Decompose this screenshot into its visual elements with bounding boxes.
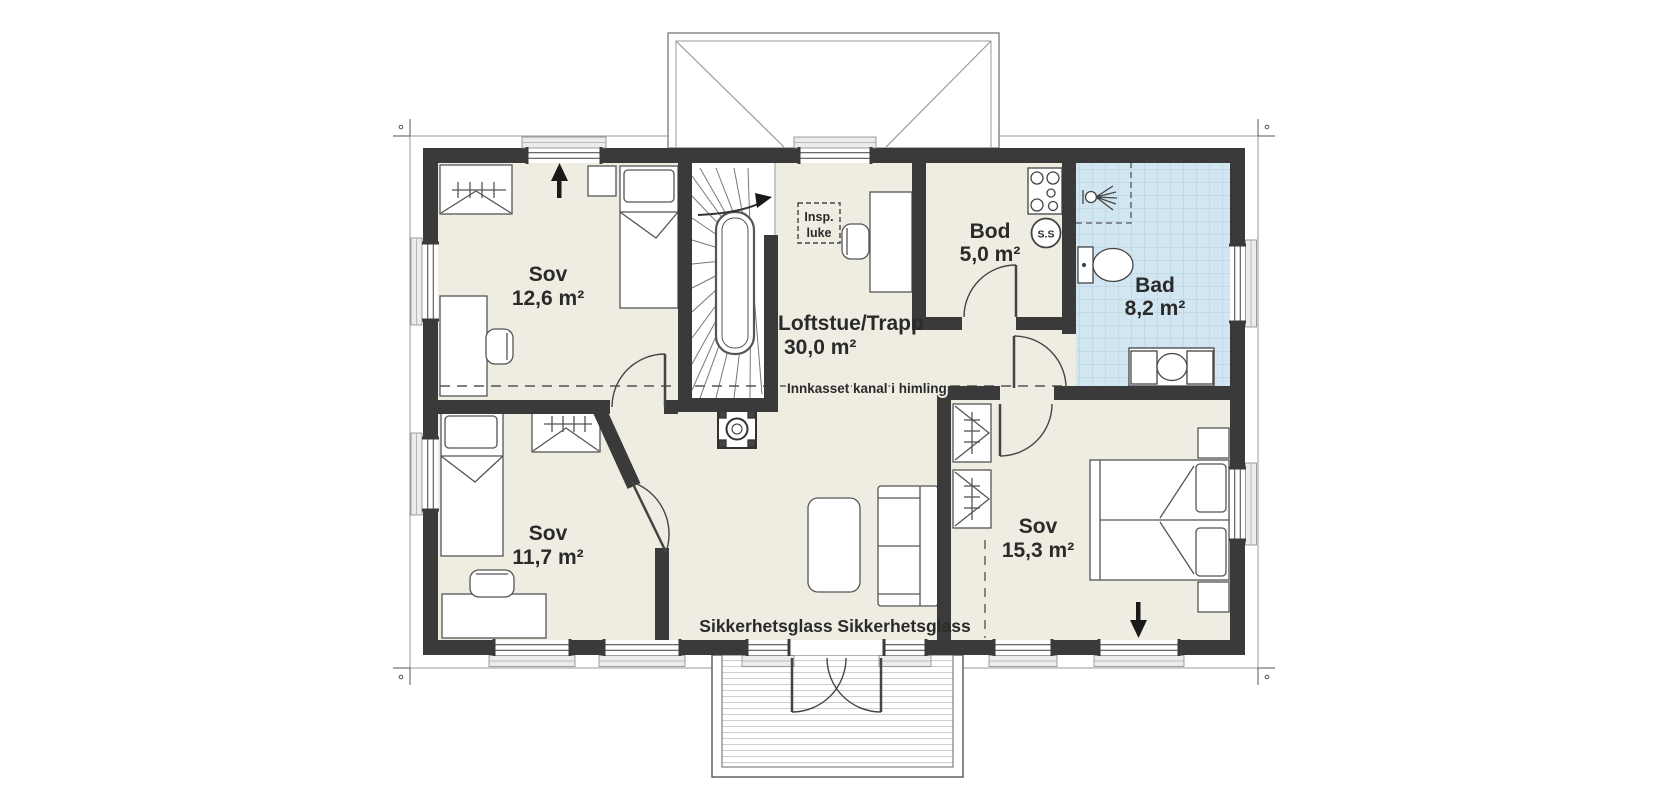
- wardrobe-icon: [953, 404, 991, 462]
- inspection-hatch-label-1: Insp.: [804, 210, 833, 224]
- floor-plan-page: Insp. luke Sov 12,6 m² Loftstue/Trapp 30…: [0, 0, 1670, 800]
- toilet-icon: [1078, 247, 1133, 283]
- single-bed-icon: [441, 411, 503, 556]
- window-icon: [599, 639, 685, 667]
- sofa-icon: [878, 486, 938, 606]
- vanity-sink-icon: [1129, 348, 1214, 386]
- room-area-sov-main: 12,6 m²: [512, 287, 584, 310]
- terrace-door-threshold: [788, 640, 885, 655]
- window-icon: [411, 433, 439, 515]
- desk-icon: [440, 296, 487, 396]
- dormer-roof-outline: [668, 33, 999, 148]
- inspection-hatch-label-2: luke: [806, 226, 831, 240]
- coffee-table-icon: [808, 498, 860, 592]
- room-area-bad: 8,2 m²: [1125, 297, 1186, 320]
- wardrobe-icon: [953, 470, 991, 528]
- room-name-sov-main: Sov: [529, 263, 568, 286]
- chair-icon: [470, 570, 514, 597]
- window-icon: [522, 137, 606, 164]
- window-icon: [794, 137, 876, 164]
- shaft-label: S.S: [1038, 229, 1055, 241]
- window-icon: [1229, 463, 1257, 545]
- chimney-icon: [718, 410, 756, 448]
- chair-icon: [486, 329, 513, 364]
- window-icon: [1094, 639, 1184, 667]
- safety-glass-note: Sikkerhetsglass Sikkerhetsglass: [699, 616, 971, 636]
- window-icon: [879, 639, 931, 667]
- window-icon: [411, 238, 439, 325]
- room-name-loftstue: Loftstue/Trapp: [778, 312, 924, 335]
- room-name-sov-east: Sov: [1019, 515, 1058, 538]
- room-name-bod: Bod: [970, 220, 1011, 243]
- room-name-sov-west: Sov: [529, 522, 568, 545]
- nightstand-icon: [588, 166, 616, 196]
- terrace: [712, 655, 963, 777]
- single-bed-icon: [620, 166, 678, 308]
- room-area-sov-west: 11,7 m²: [512, 546, 583, 569]
- room-name-bad: Bad: [1135, 274, 1175, 297]
- chair-icon: [842, 224, 869, 259]
- window-icon: [1229, 240, 1257, 327]
- window-icon: [489, 639, 575, 667]
- nightstand-icon: [1198, 582, 1229, 612]
- room-area-loftstue: 30,0 m²: [784, 336, 856, 359]
- stair-handrail: [716, 212, 754, 354]
- window-icon: [989, 639, 1057, 667]
- nightstand-icon: [1198, 428, 1229, 458]
- wardrobe-icon: [440, 165, 512, 214]
- room-area-sov-east: 15,3 m²: [1002, 539, 1074, 562]
- ceiling-duct-note: Innkasset kanal i himling: [787, 381, 947, 396]
- room-area-bod: 5,0 m²: [960, 243, 1021, 266]
- desk-icon: [870, 192, 912, 292]
- floor-plan-drawing: Insp. luke Sov 12,6 m² Loftstue/Trapp 30…: [0, 0, 1670, 800]
- cooktop-icon: [1028, 168, 1062, 214]
- double-bed-icon: [1090, 460, 1229, 580]
- window-icon: [742, 639, 794, 667]
- desk-icon: [442, 594, 546, 638]
